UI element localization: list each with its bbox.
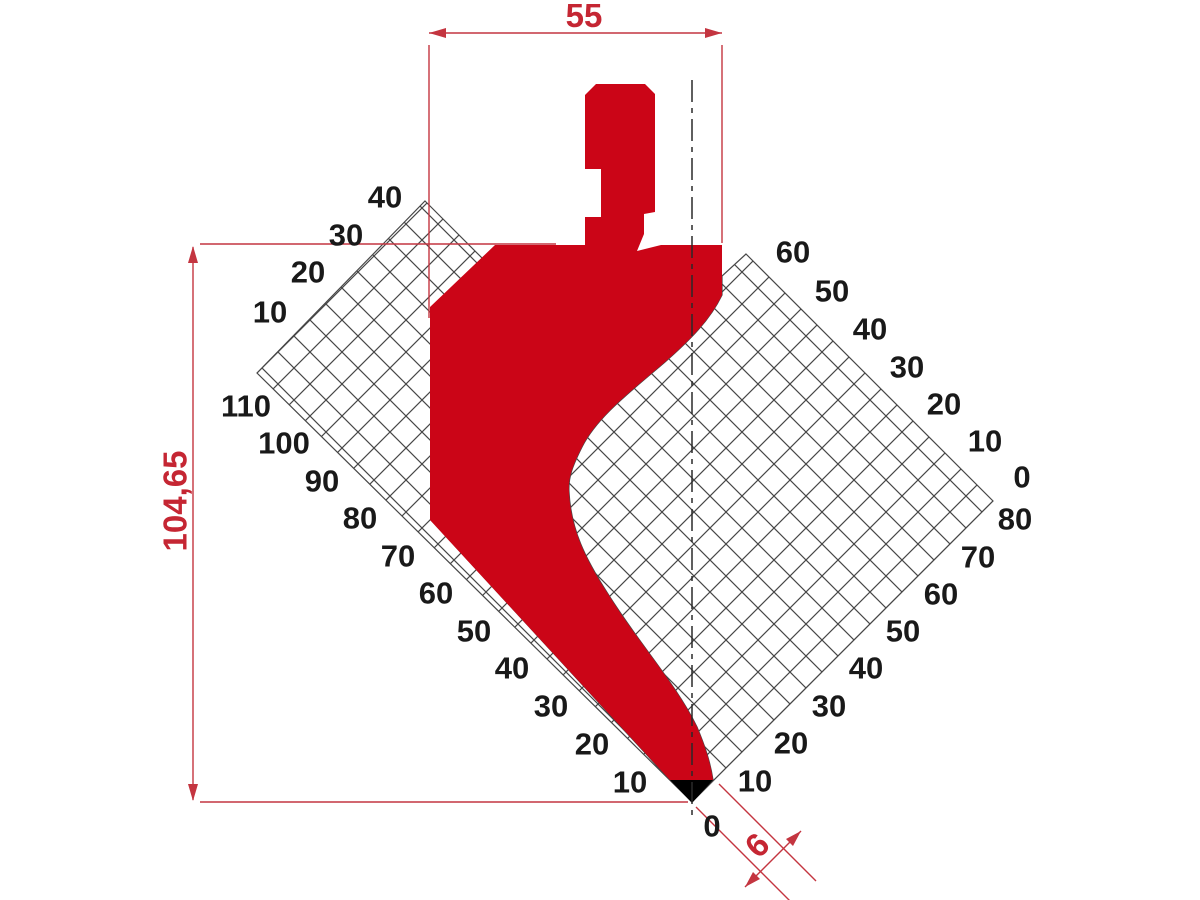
- width-dim-value: 55: [566, 0, 603, 34]
- scale-label-left_upper: 40: [368, 180, 402, 215]
- scale-label-left_lower: 110: [221, 389, 271, 424]
- scale-label-right_lower: 50: [886, 614, 920, 649]
- scale-label-left_lower: 50: [457, 614, 491, 649]
- scale-label-left_upper: 30: [329, 218, 363, 253]
- scale-label-right_upper: 30: [890, 350, 924, 385]
- drawing-canvas: 55 104,65 6 4030201011010090807060504030…: [0, 0, 1200, 900]
- scale-label-left_lower: 70: [381, 539, 415, 574]
- scale-label-left_lower: 30: [534, 689, 568, 724]
- scale-label-right_upper: 40: [853, 312, 887, 347]
- scale-label-bottom_zero: 0: [703, 809, 720, 844]
- scale-label-left_lower: 80: [343, 501, 377, 536]
- scale-label-left_lower: 100: [258, 426, 310, 461]
- scale-label-right_upper: 50: [815, 274, 849, 309]
- scale-label-left_lower: 10: [613, 765, 647, 800]
- scale-label-right_lower: 60: [924, 577, 958, 612]
- scale-label-right_upper: 0: [1013, 460, 1030, 495]
- scale-label-right_upper: 60: [776, 235, 810, 270]
- height-dim-value: 104,65: [157, 451, 194, 552]
- scale-label-left_lower: 60: [419, 576, 453, 611]
- scale-label-left_upper: 20: [291, 255, 325, 290]
- press-brake-punch-technical-drawing: 55 104,65 6 4030201011010090807060504030…: [0, 0, 1200, 900]
- scale-label-right_lower: 20: [774, 726, 808, 761]
- scale-label-right_lower: 10: [738, 764, 772, 799]
- scale-label-left_lower: 40: [495, 651, 529, 686]
- scale-label-left_lower: 20: [575, 727, 609, 762]
- scale-label-right_lower: 40: [849, 651, 883, 686]
- scale-label-right_lower: 80: [998, 502, 1032, 537]
- scale-label-right_upper: 10: [968, 424, 1002, 459]
- scale-label-right_lower: 30: [812, 689, 846, 724]
- scale-label-left_lower: 90: [305, 464, 339, 499]
- scale-label-right_upper: 20: [927, 387, 961, 422]
- scale-label-right_lower: 70: [961, 540, 995, 575]
- scale-label-left_upper: 10: [253, 295, 287, 330]
